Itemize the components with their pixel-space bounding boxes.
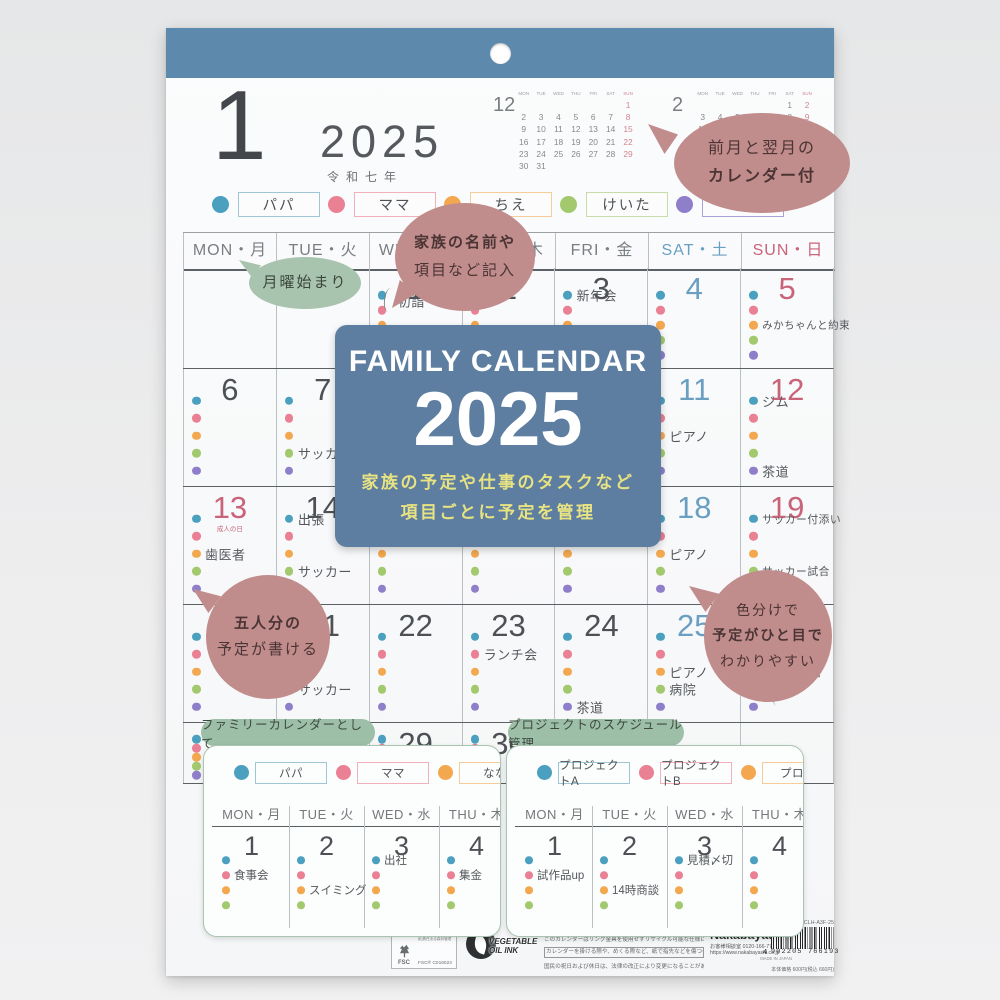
bubble-line: 予定が書ける: [217, 637, 319, 663]
mini-day: [602, 99, 619, 111]
mini-day: 20: [585, 136, 602, 148]
bubble-five-people: 五人分の 予定が書ける: [206, 575, 330, 699]
cover-title: FAMILY CALENDAR: [335, 345, 661, 379]
bubble-line: 項目など記入: [414, 257, 516, 286]
mini-day: 31: [532, 160, 549, 172]
mini-day: [567, 99, 584, 111]
event-text: 新年会: [576, 286, 617, 305]
event-text: 出社: [384, 852, 407, 868]
bubble-line: 色分けで: [736, 598, 800, 623]
mini-week-row: 1: [515, 99, 639, 111]
era-label: 令和七年: [327, 168, 403, 185]
member-dot: [222, 856, 230, 864]
mini-weekday: TUE: [711, 89, 728, 99]
member-dot: [749, 449, 758, 458]
member-dot: [372, 886, 380, 894]
member-dot: [447, 856, 455, 864]
member-dot: [192, 703, 201, 712]
card-weekday-row: MON・月TUE・火WED・水THU・木: [517, 804, 804, 823]
event-text: 見積〆切: [687, 852, 733, 868]
member-color-dot: [560, 196, 577, 213]
member-dot: [471, 585, 480, 594]
member-dot: [750, 901, 758, 909]
member-dot: [656, 291, 665, 300]
weekday-header: MON・月: [214, 804, 289, 823]
mini-day: 1: [619, 99, 636, 111]
price-label: 本体価格 600円(税込 660円): [764, 966, 834, 973]
cover-title-card: FAMILY CALENDAR 2025 家族の予定や仕事のタスクなど 項目ごと…: [335, 325, 661, 547]
member-dot: [192, 514, 201, 523]
mini-weekday: FRI: [585, 89, 602, 99]
date-number: 4: [648, 273, 740, 304]
day-cell: 22: [369, 605, 462, 722]
event-text: ピアノ: [669, 426, 708, 445]
mini-week-row: 12: [694, 99, 818, 111]
card-column-line: [439, 806, 440, 928]
member-dot: [471, 667, 480, 676]
bubble-line: 家族の名前や: [414, 229, 516, 258]
mini-day: 2: [798, 99, 815, 111]
event-text: 食事会: [234, 867, 269, 883]
mini-day: 12: [567, 123, 584, 135]
member-dot: [750, 871, 758, 879]
bubble-line: 前月と翌月の: [708, 135, 816, 163]
member-dot: [675, 886, 683, 894]
member-color-dot: [639, 765, 654, 780]
event-text: みかちゃんと約束: [762, 318, 850, 333]
member-dot: [378, 549, 387, 558]
day-cell: 5みかちゃんと約束: [740, 268, 833, 368]
member-dot: [297, 856, 305, 864]
member-dot: [749, 467, 758, 476]
mini-day: [532, 99, 549, 111]
member-dot: [656, 306, 665, 315]
member-dot: [656, 632, 665, 641]
member-dot: [378, 703, 387, 712]
mini-day: 26: [567, 148, 584, 160]
member-dot: [749, 532, 758, 541]
member-dot: [192, 685, 201, 694]
member-dot: [285, 549, 294, 558]
member-dot: [192, 632, 201, 641]
member-dot: [471, 549, 480, 558]
fsc-desc: 紙|責任ある森林管理: [418, 937, 454, 942]
event-text: 14時商談: [612, 882, 659, 898]
mini-day: [729, 99, 746, 111]
member-dot: [749, 396, 758, 405]
mini-day: 8: [619, 111, 636, 123]
member-dot: [192, 771, 201, 780]
mini-week-row: 3031: [515, 160, 639, 172]
mini-weekday: SUN: [798, 89, 815, 99]
mini-weekday-row: MONTUEWEDTHUFRISATSUN: [694, 89, 818, 99]
mini-day: [764, 99, 781, 111]
banner-family-use: ファミリーカレンダーとして: [201, 719, 375, 746]
member-dot: [656, 567, 665, 576]
member-dot: [749, 306, 758, 315]
mini-day: 21: [602, 136, 619, 148]
mini-week-row: 23242526272829: [515, 148, 639, 160]
member-dot: [563, 632, 572, 641]
member-dot: [378, 585, 387, 594]
mini-day: 30: [515, 160, 532, 172]
mini-day: 16: [515, 136, 532, 148]
member-dot: [563, 685, 572, 694]
event-text: 出張: [298, 509, 325, 528]
member-dot: [297, 901, 305, 909]
member-dot: [750, 856, 758, 864]
member-name-box: パパ: [238, 192, 320, 217]
member-dot: [285, 449, 294, 458]
day-cell: 23ランチ会: [462, 605, 555, 722]
mini-day: 14: [602, 123, 619, 135]
mini-calendar-next-month: 2: [672, 94, 683, 117]
member-dot: [372, 871, 380, 879]
member-dot: [749, 291, 758, 300]
member-dot: [563, 549, 572, 558]
example-card-family: パパママななMON・月TUE・火WED・水THU・木1食事会2スイミング3出社4…: [203, 745, 501, 937]
mini-day: 18: [550, 136, 567, 148]
bubble-prev-next-calendars: 前月と翌月の カレンダー付: [674, 113, 850, 213]
bubble-line: カレンダー付: [708, 163, 816, 191]
member-dot: [749, 351, 758, 360]
member-dot: [471, 703, 480, 712]
member-dot: [447, 901, 455, 909]
card-column-line: [289, 806, 290, 928]
member-dot: [378, 735, 387, 744]
member-dot: [525, 901, 533, 909]
member-dot: [192, 396, 201, 405]
weekday-header: THU・木: [742, 804, 804, 823]
member-dot: [525, 856, 533, 864]
day-cell: 12ジム茶道: [740, 369, 833, 486]
ean-digits: 902205 766193: [771, 948, 834, 956]
mini-weekday: MON: [515, 89, 532, 99]
event-text: サッカー: [298, 562, 352, 581]
mini-day: [619, 160, 636, 172]
member-name-box: プロジェクトB: [660, 762, 732, 784]
mini-week-row: 9101112131415: [515, 123, 639, 135]
member-dot: [656, 667, 665, 676]
day-cell: 4: [647, 268, 740, 368]
member-dot: [563, 650, 572, 659]
card-column-line: [742, 806, 743, 928]
member-name-box: プロジ: [762, 762, 804, 784]
weekday-header: FRI・金: [555, 233, 648, 269]
member-dot: [285, 567, 294, 576]
weekday-header: SAT・土: [648, 233, 741, 269]
event-text: 試作品up: [537, 867, 584, 883]
mini-day: [550, 99, 567, 111]
member-dot: [192, 667, 201, 676]
mini-day: [602, 160, 619, 172]
mini-weekday-row: MONTUEWEDTHUFRISATSUN: [515, 89, 639, 99]
event-text: 集金: [459, 867, 482, 883]
member-dot: [471, 567, 480, 576]
member-dot: [285, 414, 294, 423]
mini-day: 28: [602, 148, 619, 160]
member-dot: [749, 431, 758, 440]
mini-day: 27: [585, 148, 602, 160]
member-dot: [222, 901, 230, 909]
mini-day: [585, 160, 602, 172]
member-dot: [192, 744, 201, 753]
member-dot: [749, 321, 758, 330]
member-color-dot: [741, 765, 756, 780]
member-dot: [525, 871, 533, 879]
ink-label-2: OIL INK: [489, 946, 537, 955]
mini-day: 3: [694, 111, 711, 123]
cover-subtitle-1: 家族の予定や仕事のタスクなど: [335, 468, 661, 493]
mini-day: 11: [550, 123, 567, 135]
member-dot: [372, 901, 380, 909]
event-text: 歯医者: [205, 544, 246, 563]
mini-weekday: SUN: [619, 89, 636, 99]
member-dot: [600, 901, 608, 909]
fsc-cert-number: FSC® C016024: [418, 961, 454, 966]
member-dot: [563, 585, 572, 594]
member-dot: [378, 667, 387, 676]
member-color-dot: [328, 196, 345, 213]
member-dot: [297, 871, 305, 879]
member-color-dot: [234, 765, 249, 780]
member-dot: [675, 856, 683, 864]
member-name-box: パパ: [255, 762, 327, 784]
member-name-box: プロジェクトA: [558, 762, 630, 784]
card-column-line: [364, 806, 365, 928]
mini-day: [694, 99, 711, 111]
mini-day: 7: [602, 111, 619, 123]
member-dot: [192, 431, 201, 440]
bubble-tail: [648, 124, 678, 154]
member-dot: [675, 871, 683, 879]
member-dot: [471, 685, 480, 694]
member-dot: [285, 467, 294, 476]
mini-day: [567, 160, 584, 172]
mini-day: 29: [619, 148, 636, 160]
member-color-dot: [336, 765, 351, 780]
member-dot: [749, 514, 758, 523]
mini-weekday: WED: [550, 89, 567, 99]
member-dot: [447, 871, 455, 879]
card-column-line: [667, 806, 668, 928]
member-dot: [656, 585, 665, 594]
note-line: このカレンダーはリング金具を使用せずリサイクル可能な仕様になっております。: [544, 936, 704, 945]
member-dot: [656, 703, 665, 712]
member-dot: [563, 291, 572, 300]
mini-day: 15: [619, 123, 636, 135]
weekday-header: SUN・日: [741, 233, 834, 269]
bubble-family-names: 家族の名前や 項目など記入: [395, 203, 535, 311]
member-dot: [675, 901, 683, 909]
member-dot: [192, 467, 201, 476]
bubble-line: わかりやすい: [720, 649, 816, 674]
bubble-color-coding: 色分けで 予定がひと目で わかりやすい: [704, 570, 832, 702]
member-dot: [192, 735, 201, 744]
event-text: ジム: [762, 391, 789, 410]
card-column-line: [592, 806, 593, 928]
member-dot: [563, 703, 572, 712]
event-text: 茶道: [762, 461, 789, 480]
mini-day: 1: [781, 99, 798, 111]
mini-day: 9: [515, 123, 532, 135]
member-dot: [372, 856, 380, 864]
member-dot: [297, 886, 305, 894]
mini-calendar-prev: MONTUEWEDTHUFRISATSUN1234567891011121314…: [515, 89, 639, 172]
member-dot: [192, 549, 201, 558]
mini-weekday: FRI: [764, 89, 781, 99]
mini-day: 22: [619, 136, 636, 148]
weekday-header: WED・水: [364, 804, 439, 823]
day-cell: 24茶道: [554, 605, 647, 722]
mini-day: 10: [532, 123, 549, 135]
mini-day: 19: [567, 136, 584, 148]
weekday-header: MON・月: [183, 233, 276, 269]
member-dot: [285, 703, 294, 712]
member-dot: [192, 762, 201, 771]
member-dot: [192, 414, 201, 423]
member-dot: [285, 396, 294, 405]
weekday-header: TUE・火: [592, 804, 667, 823]
ean-lead-digit: 4: [763, 947, 767, 956]
bubble-line: 五人分の: [234, 611, 302, 637]
member-color-dot: [676, 196, 693, 213]
mini-day: 6: [585, 111, 602, 123]
hanging-hole: [490, 43, 511, 64]
member-dot: [563, 567, 572, 576]
member-dot: [378, 650, 387, 659]
bubble-line: 予定がひと目で: [712, 623, 824, 648]
member-dot: [447, 886, 455, 894]
mini-day: 13: [585, 123, 602, 135]
member-dot: [563, 667, 572, 676]
banner-project-use: プロジェクトのスケジュール管理: [508, 719, 684, 746]
weekday-header: WED・水: [667, 804, 742, 823]
note-line-boxed: カレンダーを掛ける際や、めくる際など、紙で指先などを傷つけないようにご注意くださ…: [544, 947, 704, 958]
month-number: 1: [212, 76, 267, 174]
event-text: 病院: [669, 680, 696, 699]
member-color-dot: [537, 765, 552, 780]
cover-subtitle-2: 項目ごとに予定を管理: [335, 498, 661, 523]
member-name-box: なな: [459, 762, 501, 784]
member-dot: [192, 753, 201, 762]
bubble-monday-start: 月曜始まり: [249, 257, 361, 309]
fsc-label: FSC: [398, 960, 410, 966]
weekday-header: MON・月: [517, 804, 592, 823]
member-dot: [222, 871, 230, 879]
card-divider: [515, 826, 804, 827]
event-text: ピアノ: [669, 544, 708, 563]
member-dot: [192, 650, 201, 659]
member-dot: [749, 414, 758, 423]
year-label: 2025: [320, 116, 444, 168]
example-card-project: プロジェクトAプロジェクトBプロジMON・月TUE・火WED・水THU・木1試作…: [506, 745, 804, 937]
member-dot: [192, 567, 201, 576]
member-dot: [749, 703, 758, 712]
calendar-sheet: 1 2025 令和七年 12 MONTUEWEDTHUFRISATSUN1234…: [166, 28, 834, 976]
event-text: ランチ会: [484, 645, 538, 664]
card-weekday-row: MON・月TUE・火WED・水THU・木: [214, 804, 501, 823]
event-text: スイミング: [309, 882, 367, 898]
mini-weekday: THU: [567, 89, 584, 99]
mini-day: [711, 99, 728, 111]
member-dot: [656, 549, 665, 558]
member-dot: [378, 567, 387, 576]
mini-week-row: 16171819202122: [515, 136, 639, 148]
mini-weekday: SAT: [602, 89, 619, 99]
member-dot: [749, 549, 758, 558]
mini-day: 23: [515, 148, 532, 160]
member-dot: [285, 431, 294, 440]
mini-day: [515, 99, 532, 111]
mini-day: 2: [515, 111, 532, 123]
mini-day: [550, 160, 567, 172]
day-cell: 6: [183, 369, 276, 486]
mini-day: 3: [532, 111, 549, 123]
mini-day: [585, 99, 602, 111]
member-name-box: けいた: [586, 192, 668, 217]
member-dot: [471, 632, 480, 641]
event-text: ピアノ: [669, 662, 708, 681]
mini-day: [746, 99, 763, 111]
member-dot: [192, 532, 201, 541]
mini-day: 17: [532, 136, 549, 148]
member-dot: [471, 735, 480, 744]
cover-year: 2025: [335, 381, 661, 459]
member-dot: [750, 886, 758, 894]
date-number: 5: [741, 273, 833, 304]
mini-calendar-prev-month: 12: [493, 94, 515, 117]
event-text: サッカー付添い: [762, 511, 841, 527]
product-photo: { "colors": { "strip": "#5d89ac", "card"…: [0, 0, 1000, 1000]
ink-label-1: VEGETABLE: [489, 937, 537, 946]
member-dot: [656, 685, 665, 694]
mini-day: 4: [550, 111, 567, 123]
weekday-header: TUE・火: [289, 804, 364, 823]
member-color-dot: [212, 196, 229, 213]
mini-weekday: SAT: [781, 89, 798, 99]
member-dot: [192, 449, 201, 458]
member-color-dot: [438, 765, 453, 780]
member-dot: [222, 886, 230, 894]
member-dot: [600, 871, 608, 879]
member-dot: [563, 306, 572, 315]
member-dot: [749, 336, 758, 345]
member-dot: [600, 856, 608, 864]
mini-weekday: MON: [694, 89, 711, 99]
member-dot: [378, 632, 387, 641]
member-dot: [656, 650, 665, 659]
mini-weekday: WED: [729, 89, 746, 99]
member-dot: [471, 650, 480, 659]
member-dot: [525, 886, 533, 894]
mini-day: 24: [532, 148, 549, 160]
card-divider: [212, 826, 501, 827]
member-dot: [600, 886, 608, 894]
day-cell: 11ピアノ: [647, 369, 740, 486]
mini-week-row: 2345678: [515, 111, 639, 123]
mini-day: 25: [550, 148, 567, 160]
member-dot: [285, 514, 294, 523]
weekday-header: THU・木: [439, 804, 501, 823]
member-dot: [285, 532, 294, 541]
bubble-line: 月曜始まり: [262, 270, 347, 296]
mini-weekday: THU: [746, 89, 763, 99]
mini-weekday: TUE: [532, 89, 549, 99]
mini-day: 5: [567, 111, 584, 123]
member-name-box: ママ: [357, 762, 429, 784]
note-line: 国民の祝日および休日は、法律の改正により変更になることがあります。: [544, 963, 704, 972]
